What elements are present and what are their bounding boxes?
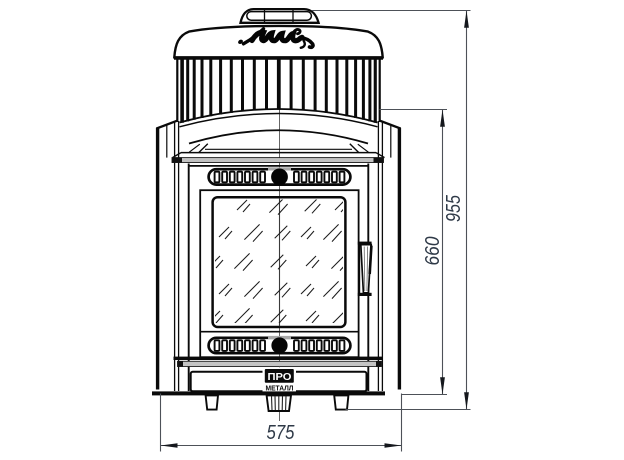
svg-text:660: 660	[422, 237, 444, 266]
svg-text:955: 955	[443, 194, 465, 222]
svg-text:575: 575	[267, 422, 296, 444]
svg-text:ПРО: ПРО	[268, 372, 292, 383]
